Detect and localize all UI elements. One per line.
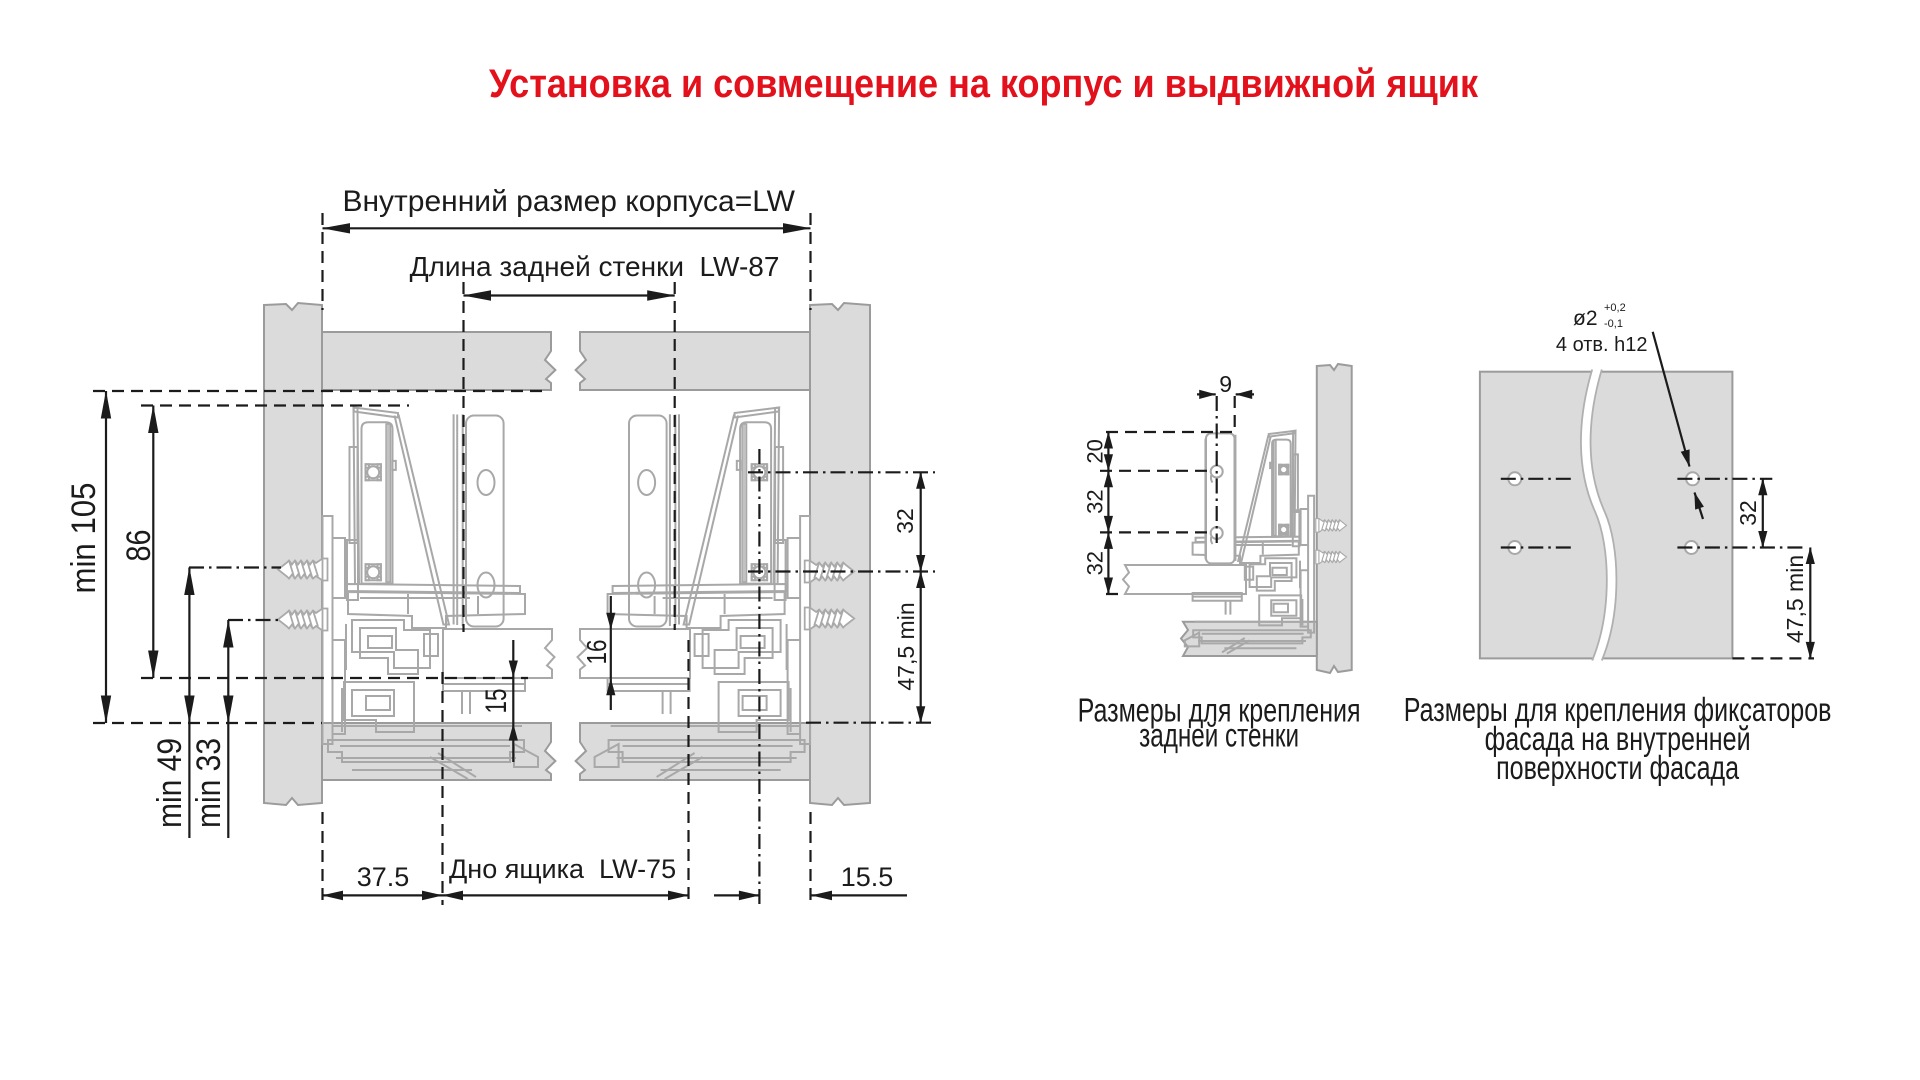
svg-text:min 49: min 49	[151, 738, 189, 828]
svg-text:32: 32	[1082, 551, 1107, 575]
svg-text:32: 32	[892, 508, 918, 534]
svg-text:47,5 min: 47,5 min	[1782, 555, 1808, 643]
svg-text:15: 15	[480, 689, 513, 714]
svg-text:20: 20	[1082, 439, 1107, 463]
svg-text:15.5: 15.5	[841, 862, 894, 892]
svg-text:min 105: min 105	[65, 483, 103, 594]
svg-text:9: 9	[1219, 371, 1232, 397]
svg-text:Внутренний размер корпуса=LW: Внутренний размер корпуса=LW	[342, 185, 795, 218]
svg-text:86: 86	[120, 530, 158, 562]
svg-text:ø2: ø2	[1573, 307, 1598, 330]
svg-text:16: 16	[581, 640, 612, 665]
svg-text:Дно ящика LW-75: Дно ящика LW-75	[449, 854, 676, 884]
svg-text:min 33: min 33	[190, 738, 228, 828]
svg-text:-0,1: -0,1	[1604, 318, 1623, 330]
svg-text:32: 32	[1082, 489, 1107, 513]
svg-text:Установка и совмещение на корп: Установка и совмещение на корпус и выдви…	[489, 62, 1479, 106]
svg-text:поверхности фасада: поверхности фасада	[1496, 749, 1739, 786]
svg-text:+0,2: +0,2	[1604, 302, 1626, 314]
svg-text:37.5: 37.5	[357, 862, 410, 892]
svg-text:4 отв. h12: 4 отв. h12	[1556, 334, 1648, 356]
svg-text:47,5 min: 47,5 min	[893, 602, 919, 690]
svg-text:задней стенки: задней стенки	[1139, 717, 1299, 754]
svg-text:Длина задней стенки LW-87: Длина задней стенки LW-87	[410, 251, 780, 282]
svg-text:32: 32	[1735, 500, 1761, 526]
